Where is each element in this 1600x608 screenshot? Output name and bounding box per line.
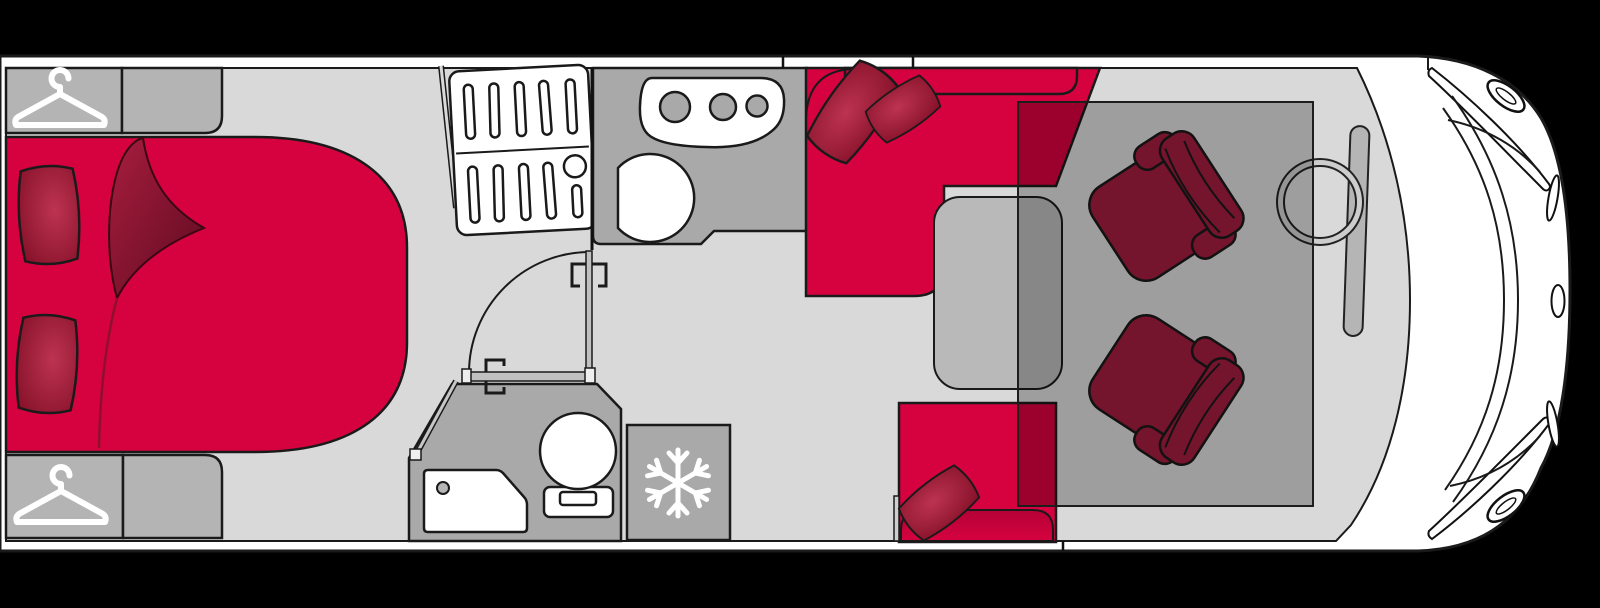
burner-medium (710, 94, 736, 120)
side-bench-armrest (894, 496, 899, 541)
drop-down-bed-overlay (1018, 102, 1313, 506)
motorhome-floorplan: Motorhome floor plan (0, 0, 1600, 608)
shower-drain (437, 482, 449, 494)
round-sink (618, 154, 694, 242)
refrigerator (627, 425, 730, 540)
burner-small (747, 96, 768, 117)
floorplan-stage: Motorhome floor plan (0, 0, 1600, 608)
bed-pillow-bottom (14, 313, 79, 414)
door-knob (563, 155, 586, 178)
toilet-bowl (540, 413, 616, 489)
bed-pillow-top (16, 164, 81, 265)
toilet-seat-hinge (560, 492, 596, 505)
fuel-cap (1552, 285, 1565, 317)
entry-area (441, 65, 596, 236)
overhead-locker-top (122, 68, 222, 133)
burner-large (660, 92, 690, 122)
louvered-door (449, 65, 596, 236)
kitchen (592, 68, 807, 250)
overhead-locker-bottom (123, 455, 222, 538)
